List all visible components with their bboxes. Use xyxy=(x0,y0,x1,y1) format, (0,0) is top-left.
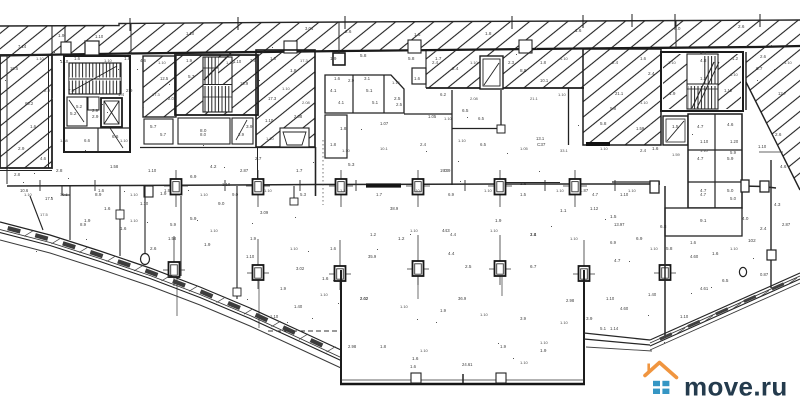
svg-text:2.9: 2.9 xyxy=(44,88,51,93)
svg-text:5.8: 5.8 xyxy=(610,106,617,111)
svg-text:2.98: 2.98 xyxy=(566,298,575,303)
svg-text:2.6: 2.6 xyxy=(775,132,782,137)
svg-text:12.5: 12.5 xyxy=(160,76,169,81)
svg-text:3.9: 3.9 xyxy=(586,316,593,321)
svg-text:1.9: 1.9 xyxy=(250,236,257,241)
svg-text:1.5: 1.5 xyxy=(520,181,527,186)
svg-text:5.8: 5.8 xyxy=(360,53,367,58)
svg-text:4.6: 4.6 xyxy=(780,164,787,169)
svg-text:1.10: 1.10 xyxy=(606,296,615,301)
svg-text:1.8: 1.8 xyxy=(270,56,277,61)
svg-text:6.6: 6.6 xyxy=(84,138,91,143)
svg-text:2.5: 2.5 xyxy=(394,96,401,101)
svg-text:5.7: 5.7 xyxy=(160,132,167,137)
svg-text:33.1: 33.1 xyxy=(560,148,569,153)
svg-text:24.61: 24.61 xyxy=(462,362,473,367)
svg-text:2.4: 2.4 xyxy=(452,66,459,71)
svg-text:1.10: 1.10 xyxy=(680,314,689,319)
svg-text:8.9: 8.9 xyxy=(80,222,87,227)
svg-text:1.10: 1.10 xyxy=(392,80,401,85)
svg-text:1.2: 1.2 xyxy=(398,236,405,241)
svg-text:1.10: 1.10 xyxy=(668,60,677,65)
svg-text:1.10: 1.10 xyxy=(628,188,637,193)
svg-text:1.8: 1.8 xyxy=(290,68,297,73)
svg-text:9.0: 9.0 xyxy=(218,201,225,206)
svg-text:1.4: 1.4 xyxy=(118,92,125,97)
svg-text:1.8: 1.8 xyxy=(380,344,387,349)
svg-text:3.1: 3.1 xyxy=(364,76,371,81)
svg-text:2.4: 2.4 xyxy=(648,71,655,76)
svg-text:1.20: 1.20 xyxy=(730,139,739,144)
svg-text:9.1: 9.1 xyxy=(700,218,707,223)
svg-text:1.8: 1.8 xyxy=(340,126,347,131)
svg-text:5.8: 5.8 xyxy=(600,121,607,126)
svg-text:1.10: 1.10 xyxy=(520,360,529,365)
svg-text:1.9: 1.9 xyxy=(540,348,547,353)
svg-text:7.14: 7.14 xyxy=(18,44,27,49)
svg-text:4.1: 4.1 xyxy=(330,88,337,93)
svg-text:30.6: 30.6 xyxy=(60,192,69,197)
svg-text:1.10: 1.10 xyxy=(282,86,291,91)
svg-text:1.6: 1.6 xyxy=(414,32,421,37)
svg-text:1.9: 1.9 xyxy=(330,56,337,61)
svg-text:1.05: 1.05 xyxy=(428,114,437,119)
svg-text:4.6: 4.6 xyxy=(140,58,147,63)
svg-text:13.1: 13.1 xyxy=(536,136,545,141)
svg-text:1.5: 1.5 xyxy=(610,214,617,219)
svg-text:5.9: 5.9 xyxy=(190,216,197,221)
svg-text:5.3: 5.3 xyxy=(348,162,355,167)
svg-text:1.5: 1.5 xyxy=(672,124,679,129)
svg-text:1.10: 1.10 xyxy=(400,304,409,309)
svg-text:6.7: 6.7 xyxy=(756,66,763,71)
svg-text:1.7: 1.7 xyxy=(296,168,303,173)
svg-text:5.8: 5.8 xyxy=(408,56,415,61)
svg-text:65.2: 65.2 xyxy=(25,101,34,106)
svg-text:1.5: 1.5 xyxy=(520,192,527,197)
svg-text:1.87: 1.87 xyxy=(580,188,589,193)
svg-text:1.6: 1.6 xyxy=(334,76,341,81)
svg-text:2.9: 2.9 xyxy=(18,146,25,151)
svg-text:17.3: 17.3 xyxy=(268,96,277,101)
svg-text:1.10: 1.10 xyxy=(570,236,579,241)
svg-text:4.60: 4.60 xyxy=(690,254,699,259)
svg-text:1.07: 1.07 xyxy=(380,121,389,126)
svg-text:5.2: 5.2 xyxy=(70,111,77,116)
svg-text:1.10: 1.10 xyxy=(340,188,349,193)
svg-text:1.12: 1.12 xyxy=(590,206,599,211)
svg-text:3.04: 3.04 xyxy=(305,26,314,31)
svg-text:35.9: 35.9 xyxy=(368,254,377,259)
svg-text:4.8: 4.8 xyxy=(700,50,707,55)
svg-text:4.6: 4.6 xyxy=(727,122,734,127)
svg-text:1.10: 1.10 xyxy=(130,218,139,223)
svg-text:1.8: 1.8 xyxy=(124,56,131,61)
svg-text:1.10: 1.10 xyxy=(158,60,167,65)
svg-text:3.9: 3.9 xyxy=(520,316,527,321)
svg-text:1.9: 1.9 xyxy=(186,58,193,63)
svg-text:1.6: 1.6 xyxy=(120,226,127,231)
svg-text:2.5: 2.5 xyxy=(465,264,472,269)
svg-text:2.9: 2.9 xyxy=(348,78,355,83)
svg-text:1.10: 1.10 xyxy=(700,148,709,153)
svg-text:12.7: 12.7 xyxy=(778,91,787,96)
svg-text:443: 443 xyxy=(442,228,450,233)
svg-text:4.7: 4.7 xyxy=(614,258,621,263)
svg-text:5.0: 5.0 xyxy=(727,188,734,193)
svg-text:102: 102 xyxy=(748,238,756,243)
svg-text:1.6: 1.6 xyxy=(322,276,329,281)
svg-text:2.08: 2.08 xyxy=(294,114,303,119)
svg-text:1.10: 1.10 xyxy=(222,182,231,187)
svg-text:1.10: 1.10 xyxy=(420,348,429,353)
svg-text:1.9: 1.9 xyxy=(280,286,287,291)
svg-text:1.10: 1.10 xyxy=(640,100,649,105)
svg-text:1.6: 1.6 xyxy=(652,146,659,151)
svg-text:1.58: 1.58 xyxy=(60,138,69,143)
svg-text:2.08: 2.08 xyxy=(302,100,311,105)
svg-text:21.1: 21.1 xyxy=(530,96,539,101)
svg-text:1.10: 1.10 xyxy=(266,136,275,141)
svg-text:1.40: 1.40 xyxy=(294,304,303,309)
svg-text:1.10: 1.10 xyxy=(290,246,299,251)
svg-text:1.8: 1.8 xyxy=(485,31,492,36)
svg-text:10.1: 10.1 xyxy=(540,78,549,83)
svg-text:2.5: 2.5 xyxy=(396,102,403,107)
svg-text:10.5: 10.5 xyxy=(10,66,19,71)
svg-text:1.2: 1.2 xyxy=(370,232,377,237)
svg-text:4.61: 4.61 xyxy=(700,286,709,291)
svg-text:1.10: 1.10 xyxy=(560,56,569,61)
svg-text:8.0: 8.0 xyxy=(200,132,207,137)
svg-text:6.7: 6.7 xyxy=(530,264,537,269)
svg-text:1.10: 1.10 xyxy=(730,72,739,77)
svg-text:1.10: 1.10 xyxy=(130,192,139,197)
svg-text:5.1: 5.1 xyxy=(600,326,607,331)
svg-text:2.6: 2.6 xyxy=(150,246,157,251)
svg-text:1.6: 1.6 xyxy=(414,76,421,81)
svg-text:2.4: 2.4 xyxy=(760,226,767,231)
svg-text:1.10: 1.10 xyxy=(600,146,609,151)
svg-text:4.4: 4.4 xyxy=(450,232,457,237)
svg-text:2.87: 2.87 xyxy=(240,168,249,173)
svg-text:2.08: 2.08 xyxy=(168,96,177,101)
svg-text:4.1: 4.1 xyxy=(338,100,345,105)
svg-text:1.6: 1.6 xyxy=(575,28,582,33)
svg-text:1.9: 1.9 xyxy=(164,188,171,193)
svg-text:1.6: 1.6 xyxy=(412,356,419,361)
svg-text:5.1: 5.1 xyxy=(366,88,373,93)
svg-text:1.10: 1.10 xyxy=(556,188,565,193)
svg-text:6.9: 6.9 xyxy=(190,174,197,179)
svg-text:move.ru: move.ru xyxy=(684,372,788,402)
svg-text:1.6: 1.6 xyxy=(98,188,105,193)
svg-text:4.3: 4.3 xyxy=(774,202,781,207)
svg-text:1.9: 1.9 xyxy=(669,91,676,96)
svg-text:1.05: 1.05 xyxy=(520,146,529,151)
svg-text:21.1: 21.1 xyxy=(615,91,624,96)
svg-text:3.09: 3.09 xyxy=(260,210,269,215)
svg-text:5.3: 5.3 xyxy=(300,192,307,197)
svg-text:1.9: 1.9 xyxy=(500,344,507,349)
svg-text:1.58: 1.58 xyxy=(168,236,177,241)
svg-text:4.7: 4.7 xyxy=(700,192,707,197)
svg-text:2.6: 2.6 xyxy=(738,24,745,29)
svg-text:3.9: 3.9 xyxy=(238,132,245,137)
svg-text:2.4: 2.4 xyxy=(420,142,427,147)
svg-text:8.8: 8.8 xyxy=(520,68,527,73)
svg-text:0.9: 0.9 xyxy=(444,168,451,173)
svg-text:7.8: 7.8 xyxy=(68,88,75,93)
svg-text:8.0: 8.0 xyxy=(674,26,681,31)
svg-text:1.8: 1.8 xyxy=(540,60,547,65)
svg-text:1.10: 1.10 xyxy=(558,92,567,97)
svg-text:5.9: 5.9 xyxy=(730,150,737,155)
svg-text:6.9: 6.9 xyxy=(636,236,643,241)
svg-text:1.1: 1.1 xyxy=(560,208,567,213)
svg-text:4.0: 4.0 xyxy=(742,216,749,221)
svg-text:1.2: 1.2 xyxy=(700,76,707,81)
svg-text:5.7: 5.7 xyxy=(188,74,195,79)
svg-text:2.4: 2.4 xyxy=(432,60,439,65)
svg-text:1.10: 1.10 xyxy=(104,58,113,63)
svg-text:1.10: 1.10 xyxy=(412,188,421,193)
svg-text:1.58: 1.58 xyxy=(110,164,119,169)
svg-text:1.10: 1.10 xyxy=(320,292,329,297)
svg-text:1.6: 1.6 xyxy=(330,246,337,251)
svg-text:1.9: 1.9 xyxy=(58,33,65,38)
svg-text:2.08: 2.08 xyxy=(470,96,479,101)
svg-text:6.5: 6.5 xyxy=(722,278,729,283)
svg-text:1.10: 1.10 xyxy=(444,116,453,121)
svg-text:1.10: 1.10 xyxy=(148,168,157,173)
svg-text:1.10: 1.10 xyxy=(490,228,499,233)
svg-text:1.59: 1.59 xyxy=(672,152,681,157)
svg-text:2.3: 2.3 xyxy=(508,60,515,65)
svg-text:6.2: 6.2 xyxy=(440,92,447,97)
svg-text:1.10: 1.10 xyxy=(480,312,489,317)
svg-text:1.10: 1.10 xyxy=(270,314,279,319)
svg-text:6.5: 6.5 xyxy=(478,116,485,121)
svg-text:1.10: 1.10 xyxy=(458,138,467,143)
svg-text:9.0: 9.0 xyxy=(232,192,239,197)
svg-text:2.6: 2.6 xyxy=(345,29,352,34)
svg-text:10.1: 10.1 xyxy=(380,146,389,151)
svg-text:2.4: 2.4 xyxy=(612,60,619,65)
svg-text:1.6: 1.6 xyxy=(74,56,81,61)
svg-text:0.87: 0.87 xyxy=(760,272,769,277)
svg-text:6.9: 6.9 xyxy=(448,192,455,197)
svg-text:4.7: 4.7 xyxy=(697,124,704,129)
svg-text:1.9: 1.9 xyxy=(495,218,502,223)
svg-text:1.10: 1.10 xyxy=(246,254,255,259)
svg-text:1.10: 1.10 xyxy=(186,31,195,36)
svg-text:1.7: 1.7 xyxy=(376,192,383,197)
svg-text:1.2: 1.2 xyxy=(732,56,739,61)
svg-text:4.7: 4.7 xyxy=(697,156,704,161)
svg-text:5.9: 5.9 xyxy=(727,156,734,161)
svg-text:5.0: 5.0 xyxy=(730,196,737,201)
svg-text:2.4: 2.4 xyxy=(640,148,647,153)
svg-text:1.9: 1.9 xyxy=(440,308,447,313)
svg-text:6.5: 6.5 xyxy=(462,108,469,113)
svg-text:4.6: 4.6 xyxy=(40,156,47,161)
svg-text:4.2: 4.2 xyxy=(210,164,217,169)
svg-text:1.10: 1.10 xyxy=(484,188,493,193)
svg-text:5.7: 5.7 xyxy=(150,124,157,129)
svg-text:1.10: 1.10 xyxy=(210,228,219,233)
svg-text:17.5: 17.5 xyxy=(45,196,54,201)
svg-text:1.40: 1.40 xyxy=(648,292,657,297)
svg-text:5.8: 5.8 xyxy=(666,246,673,251)
svg-text:3.02: 3.02 xyxy=(296,266,305,271)
svg-text:1.10: 1.10 xyxy=(784,60,793,65)
svg-text:4.7: 4.7 xyxy=(592,192,599,197)
svg-text:1.10: 1.10 xyxy=(60,59,69,64)
svg-text:1.6: 1.6 xyxy=(690,240,697,245)
svg-text:2.6: 2.6 xyxy=(760,54,767,59)
svg-text:4.8: 4.8 xyxy=(700,58,707,63)
svg-text:1.6: 1.6 xyxy=(640,56,647,61)
svg-text:1.10: 1.10 xyxy=(410,228,419,233)
svg-text:6.5: 6.5 xyxy=(480,142,487,147)
svg-text:3.9: 3.9 xyxy=(246,124,253,129)
svg-text:1.10: 1.10 xyxy=(265,118,274,123)
svg-text:36.9: 36.9 xyxy=(458,296,467,301)
svg-text:1.6: 1.6 xyxy=(30,124,37,129)
svg-text:3.9: 3.9 xyxy=(250,58,257,63)
svg-text:1.6: 1.6 xyxy=(712,251,719,256)
svg-text:1.10: 1.10 xyxy=(200,192,209,197)
svg-text:1.10: 1.10 xyxy=(120,138,129,143)
svg-text:6.8: 6.8 xyxy=(660,224,667,229)
svg-text:1.10: 1.10 xyxy=(36,56,45,61)
svg-text:2.5: 2.5 xyxy=(530,232,537,237)
svg-text:4.60: 4.60 xyxy=(620,306,629,311)
svg-text:C37: C37 xyxy=(537,142,546,147)
svg-text:1.6: 1.6 xyxy=(104,206,111,211)
svg-text:1.6: 1.6 xyxy=(410,364,417,369)
svg-text:17.3: 17.3 xyxy=(300,58,309,63)
svg-text:2.98: 2.98 xyxy=(348,344,357,349)
svg-text:2.62: 2.62 xyxy=(360,296,369,301)
svg-text:1.10: 1.10 xyxy=(758,144,767,149)
svg-text:6.9: 6.9 xyxy=(610,240,617,245)
svg-text:2.8: 2.8 xyxy=(56,168,63,173)
svg-text:1.10: 1.10 xyxy=(140,201,149,206)
svg-text:13.9: 13.9 xyxy=(240,81,249,86)
svg-text:38.9: 38.9 xyxy=(390,206,399,211)
svg-text:1.10: 1.10 xyxy=(24,192,33,197)
svg-text:2.9: 2.9 xyxy=(92,108,99,113)
svg-text:5.2: 5.2 xyxy=(76,104,83,109)
svg-text:1.10: 1.10 xyxy=(470,60,479,65)
svg-text:1.12: 1.12 xyxy=(724,88,733,93)
svg-text:2.7: 2.7 xyxy=(255,156,262,161)
svg-text:1.14: 1.14 xyxy=(610,326,619,331)
svg-text:1.10: 1.10 xyxy=(650,246,659,251)
svg-text:1.10: 1.10 xyxy=(700,139,709,144)
svg-text:5.1: 5.1 xyxy=(372,100,379,105)
svg-text:1.9: 1.9 xyxy=(204,242,211,247)
svg-text:1.59: 1.59 xyxy=(636,126,645,131)
svg-text:2.87: 2.87 xyxy=(782,222,791,227)
svg-text:1.10: 1.10 xyxy=(95,34,104,39)
svg-text:6.6: 6.6 xyxy=(112,134,119,139)
svg-text:2.9: 2.9 xyxy=(126,88,133,93)
svg-text:1.10: 1.10 xyxy=(560,320,569,325)
svg-text:1.8: 1.8 xyxy=(330,142,337,147)
svg-text:1.10: 1.10 xyxy=(264,188,273,193)
svg-text:17.5: 17.5 xyxy=(40,212,49,217)
svg-text:2.8: 2.8 xyxy=(14,172,21,177)
svg-text:1.10: 1.10 xyxy=(730,246,739,251)
svg-text:4.4: 4.4 xyxy=(448,251,455,256)
svg-text:1.10: 1.10 xyxy=(540,340,549,345)
svg-text:1.10: 1.10 xyxy=(226,60,235,65)
svg-text:13.97: 13.97 xyxy=(614,222,625,227)
svg-text:17.3: 17.3 xyxy=(152,92,161,97)
svg-text:1.10: 1.10 xyxy=(233,59,242,64)
svg-text:1.10: 1.10 xyxy=(342,148,351,153)
svg-text:2.9: 2.9 xyxy=(92,114,99,119)
svg-text:5.9: 5.9 xyxy=(170,222,177,227)
